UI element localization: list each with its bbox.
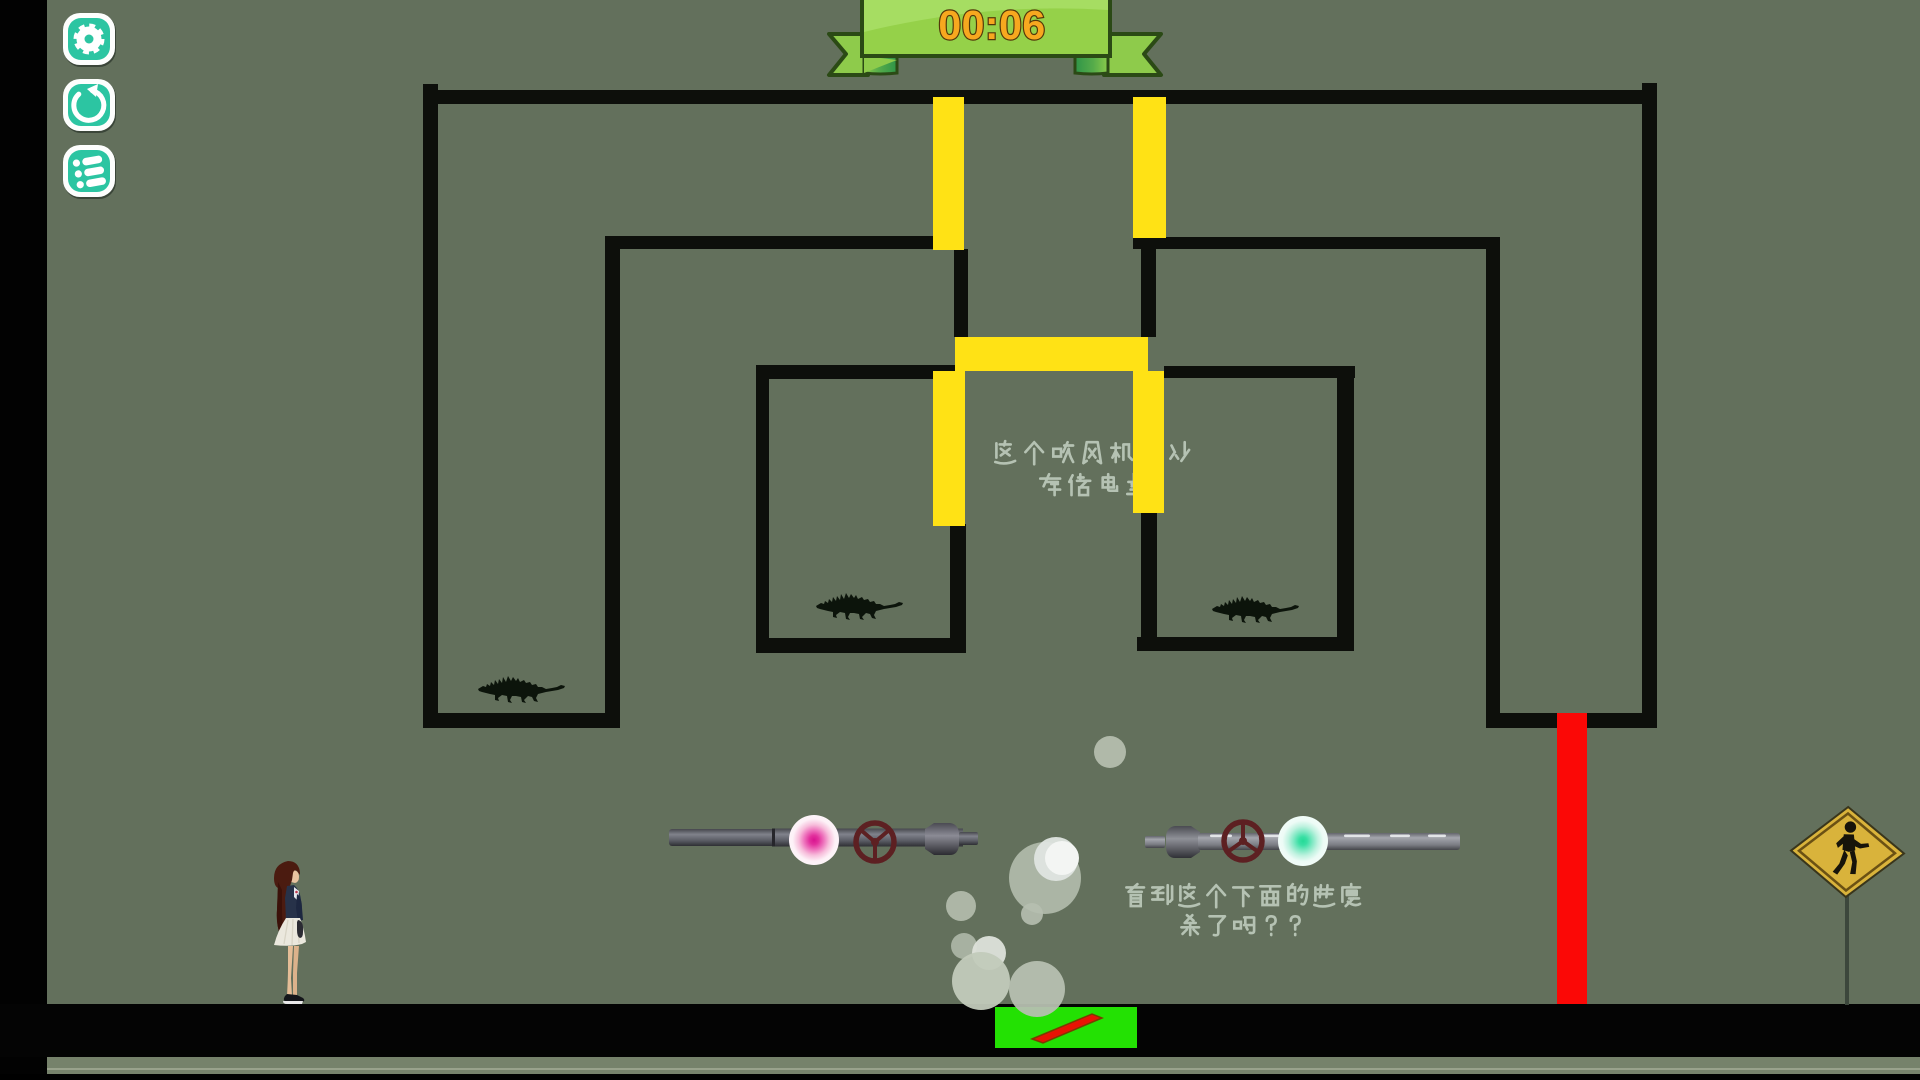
svg-text:00:06: 00:06: [938, 2, 1045, 48]
